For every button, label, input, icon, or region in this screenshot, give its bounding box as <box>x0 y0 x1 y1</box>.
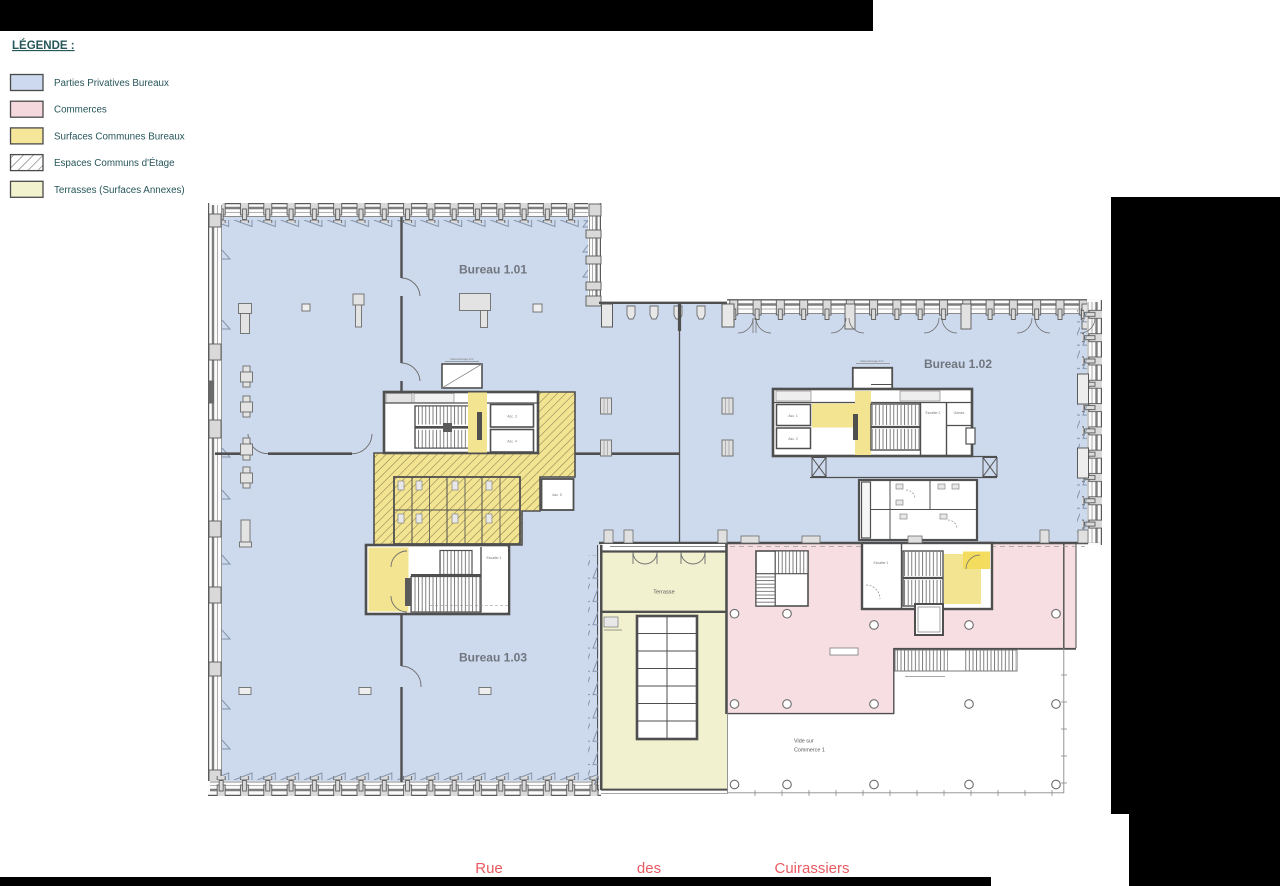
svg-text:Bureau 1.03: Bureau 1.03 <box>459 651 527 665</box>
svg-text:Commerces: Commerces <box>54 105 107 116</box>
svg-text:Commerce 1: Commerce 1 <box>794 748 825 754</box>
svg-text:Terrasse: Terrasse <box>653 590 674 596</box>
svg-text:Cuirassiers: Cuirassiers <box>774 860 849 877</box>
svg-text:Parties Privatives Bureaux: Parties Privatives Bureaux <box>54 78 169 89</box>
svg-text:Désenfumage 1m²: Désenfumage 1m² <box>860 359 883 363</box>
svg-text:des: des <box>637 860 661 877</box>
svg-text:Asc. 2: Asc. 2 <box>788 437 798 441</box>
svg-text:Bureau 1.02: Bureau 1.02 <box>924 357 992 371</box>
svg-text:Vide sur: Vide sur <box>794 739 814 745</box>
svg-text:Rue: Rue <box>475 860 503 877</box>
svg-text:Escalier 2: Escalier 2 <box>926 411 941 415</box>
svg-text:Asc. 1: Asc. 1 <box>788 414 798 418</box>
svg-text:Surfaces Communes Bureaux: Surfaces Communes Bureaux <box>54 131 185 142</box>
svg-text:Asc. 3: Asc. 3 <box>507 415 517 419</box>
svg-text:Escalier 1: Escalier 1 <box>874 561 889 565</box>
svg-text:Désenfumage 1m²: Désenfumage 1m² <box>450 357 473 361</box>
svg-text:Espaces Communs d'Étage: Espaces Communs d'Étage <box>54 158 175 169</box>
svg-text:Escalier 1: Escalier 1 <box>487 556 502 560</box>
svg-text:Gaines: Gaines <box>954 411 965 415</box>
svg-text:Asc. 5: Asc. 5 <box>552 493 562 497</box>
svg-text:Terrasses (Surfaces Annexes): Terrasses (Surfaces Annexes) <box>54 185 185 196</box>
svg-text:LÉGENDE :: LÉGENDE : <box>12 39 75 52</box>
svg-text:Bureau 1.01: Bureau 1.01 <box>459 263 527 277</box>
svg-text:Asc. 4: Asc. 4 <box>507 440 517 444</box>
